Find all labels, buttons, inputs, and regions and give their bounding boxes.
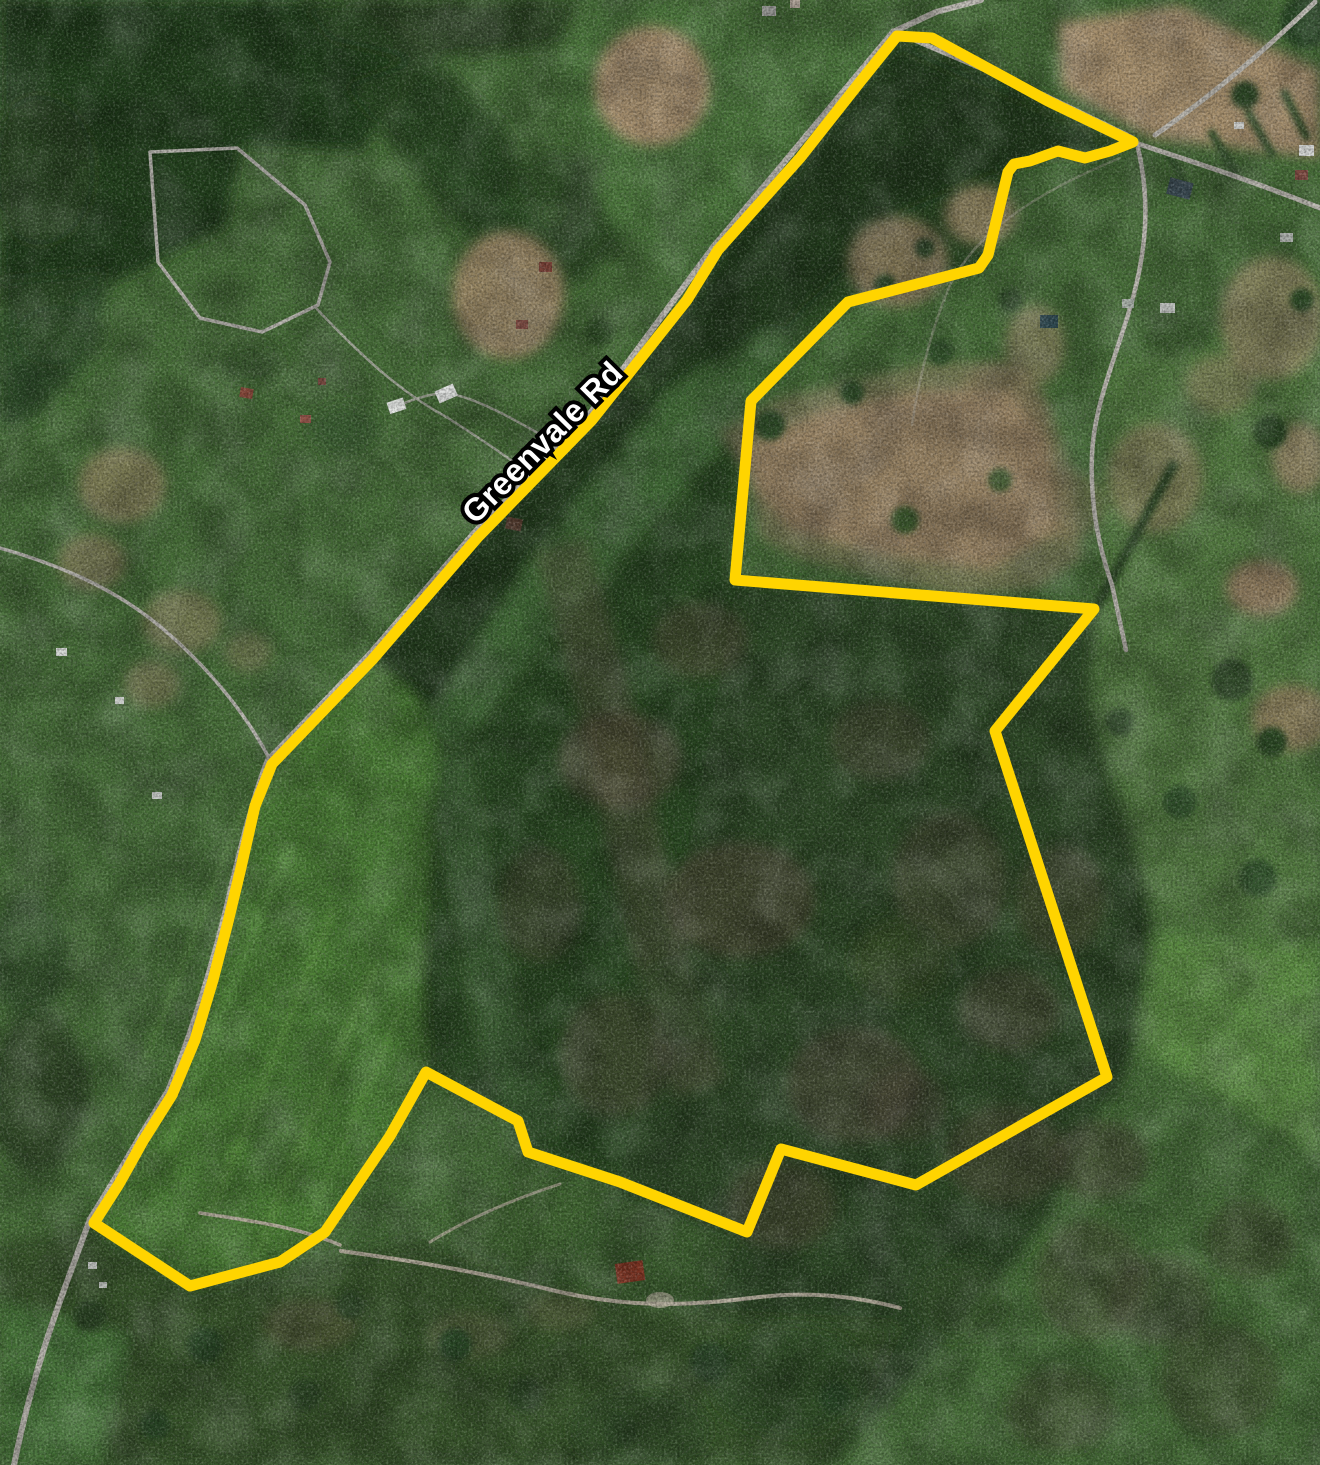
svg-text:Greenvale Rd: Greenvale Rd [455,354,630,530]
